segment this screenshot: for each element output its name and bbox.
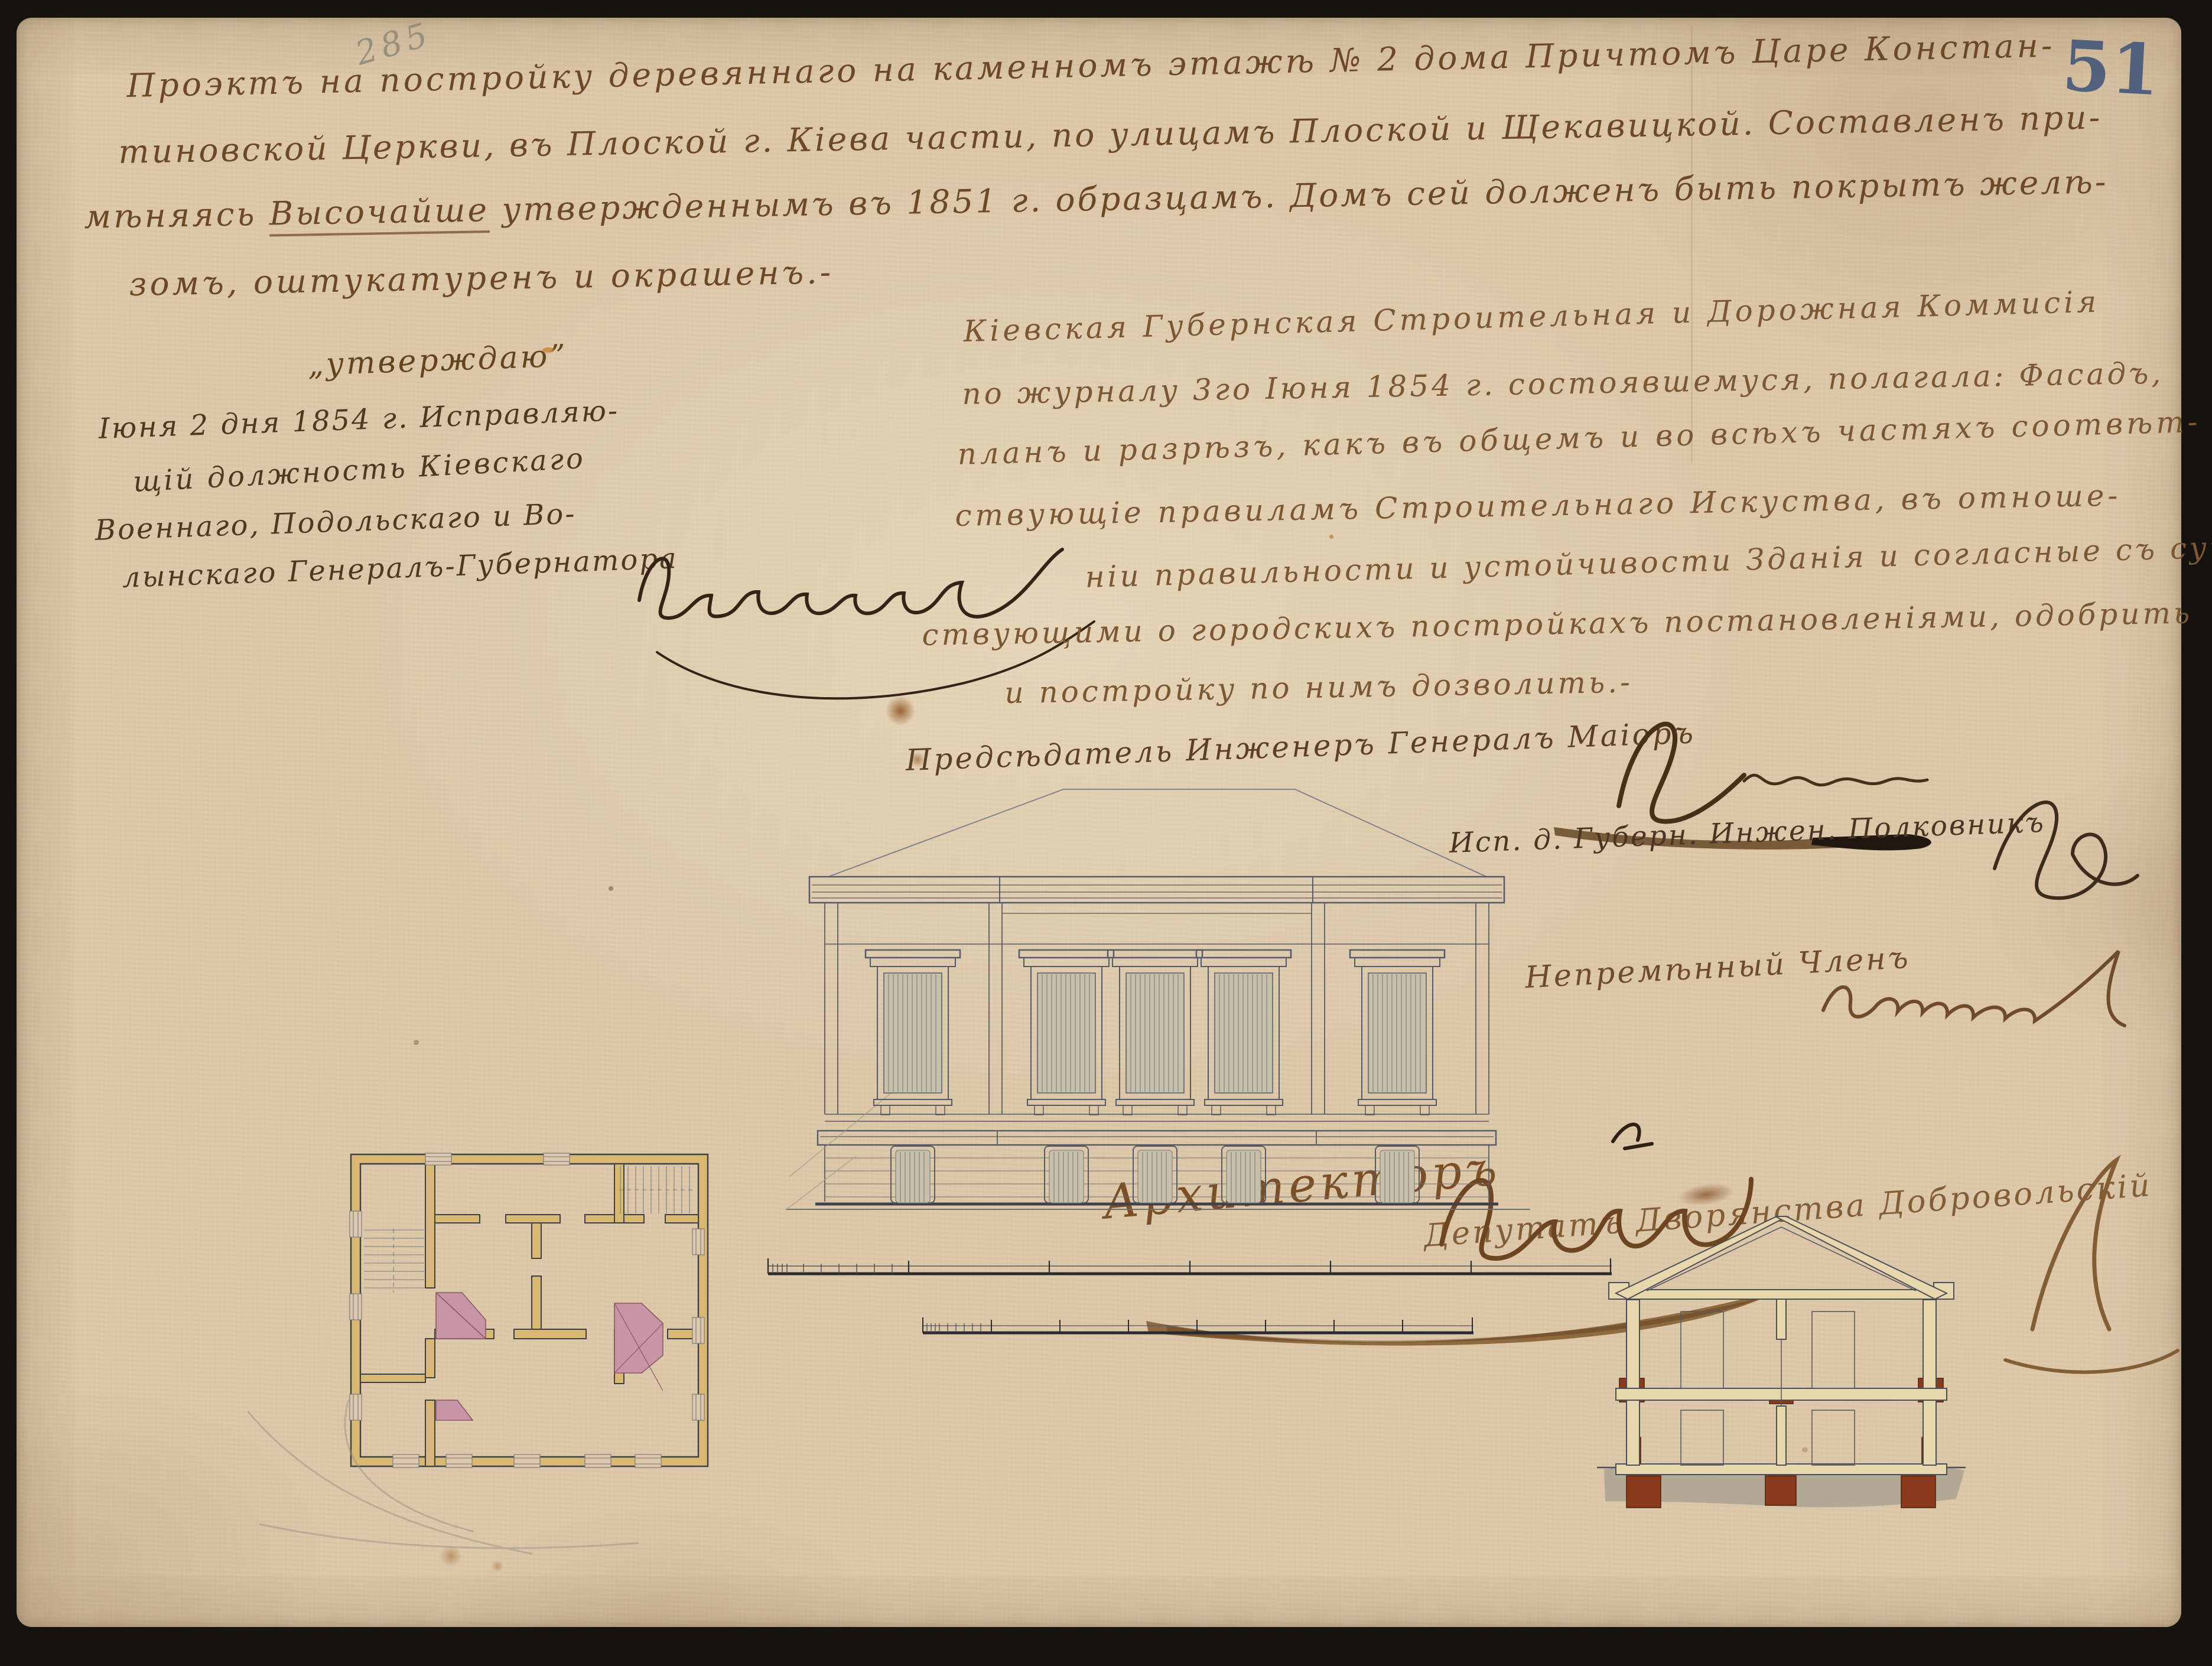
official-3-signature-flourish bbox=[1997, 1134, 2198, 1406]
plan-staircases bbox=[364, 1166, 695, 1293]
roof-outline bbox=[828, 789, 1486, 877]
pencil-construction-lines bbox=[786, 1082, 904, 1210]
header-line-3-underlined: Высочайше bbox=[269, 191, 489, 236]
archive-folio-number: 51 bbox=[2061, 31, 2161, 105]
paper-fold-line bbox=[1691, 26, 1693, 463]
facade-elevation-drawing bbox=[786, 763, 1530, 1218]
scale-bar-upper bbox=[767, 1256, 1615, 1283]
cross-section-drawing bbox=[1592, 1202, 1970, 1509]
approval-title: „утверждаю” bbox=[307, 341, 568, 380]
scale-bar-lower bbox=[922, 1315, 1477, 1342]
header-line-3-pre: мѣняясь bbox=[84, 195, 269, 236]
pencil-scribbles bbox=[225, 1377, 756, 1577]
official-2-signature-flourish bbox=[1811, 910, 2166, 1075]
scanned-archival-sheet: 285 51 Проэктъ на постройку деревяннаго … bbox=[0, 0, 2212, 1666]
